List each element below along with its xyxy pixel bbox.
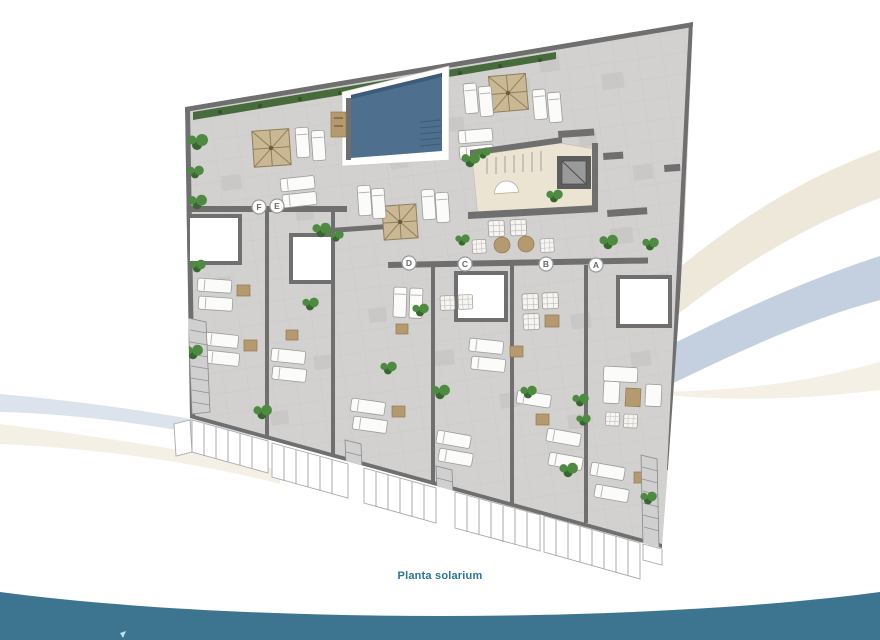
unit-marker-d: D [402, 256, 416, 270]
unit-marker-a: A [589, 258, 603, 272]
unit-label-a: A [593, 260, 599, 270]
unit-label-e: E [274, 201, 280, 211]
footer-teal-band [0, 592, 880, 640]
pergola-1 [252, 129, 291, 167]
unit-label-c: C [462, 259, 468, 269]
pool-side-wall [346, 98, 351, 160]
pergola-2 [488, 73, 528, 112]
unit-label-f: F [256, 202, 261, 212]
floor-plan: F E D C B A [174, 22, 693, 579]
solarium-plan-scene: F E D C B A [0, 0, 880, 640]
unit-marker-f: F [252, 200, 266, 214]
unit-marker-e: E [270, 199, 284, 213]
plan-caption: Planta solarium [0, 570, 880, 582]
brochure-page: F E D C B A Planta [0, 0, 880, 640]
pergola-3 [382, 204, 418, 240]
unit-marker-b: B [539, 257, 553, 271]
unit-label-d: D [406, 258, 412, 268]
unit-label-b: B [543, 259, 549, 269]
outdoor-shower [331, 112, 346, 137]
unit-marker-c: C [458, 257, 472, 271]
